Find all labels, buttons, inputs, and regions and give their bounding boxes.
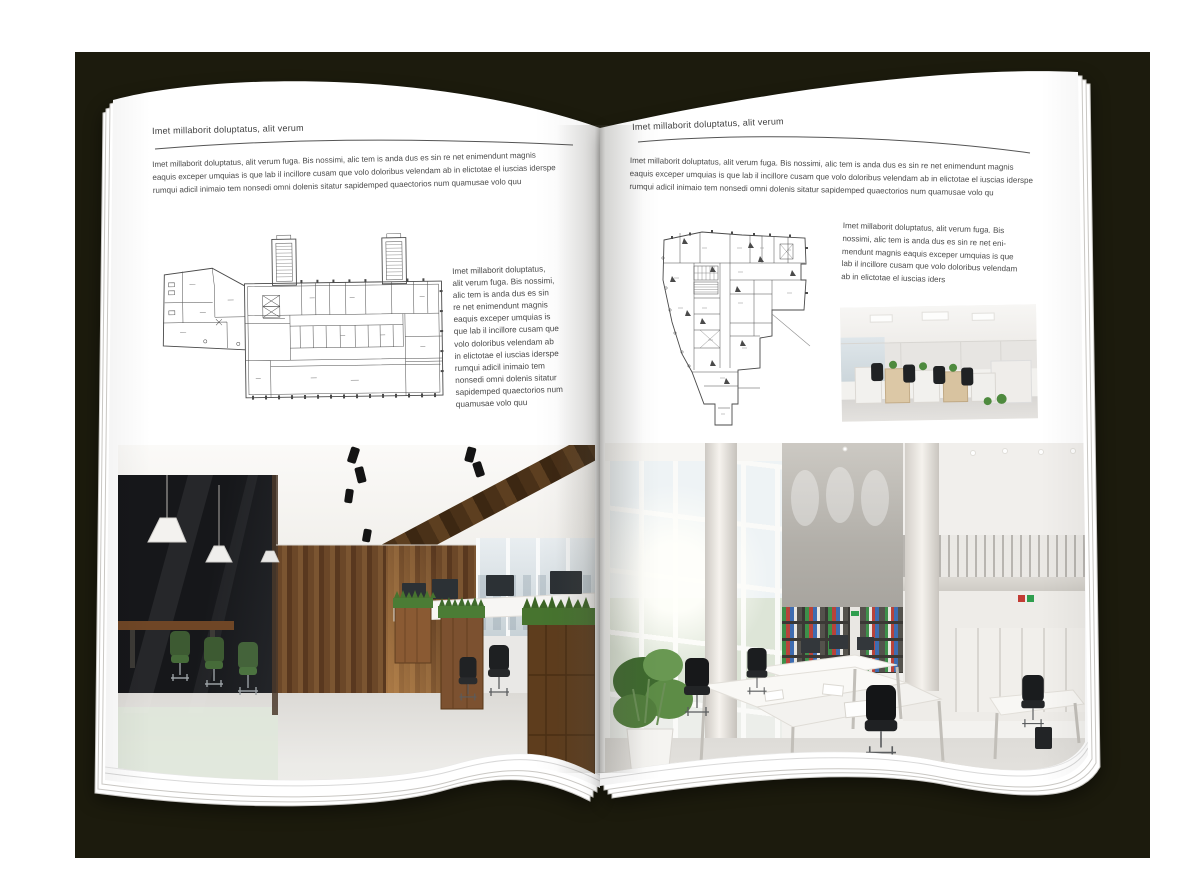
right-page: Imet millaborit doluptatus, alit verum I…: [600, 60, 1100, 825]
left-page: Imet millaborit doluptatus, alit verum I…: [100, 60, 605, 825]
open-magazine: Imet millaborit doluptatus, alit verum I…: [0, 0, 1200, 891]
magazine-mockup-canvas: Imet millaborit doluptatus, alit verum I…: [0, 0, 1200, 891]
